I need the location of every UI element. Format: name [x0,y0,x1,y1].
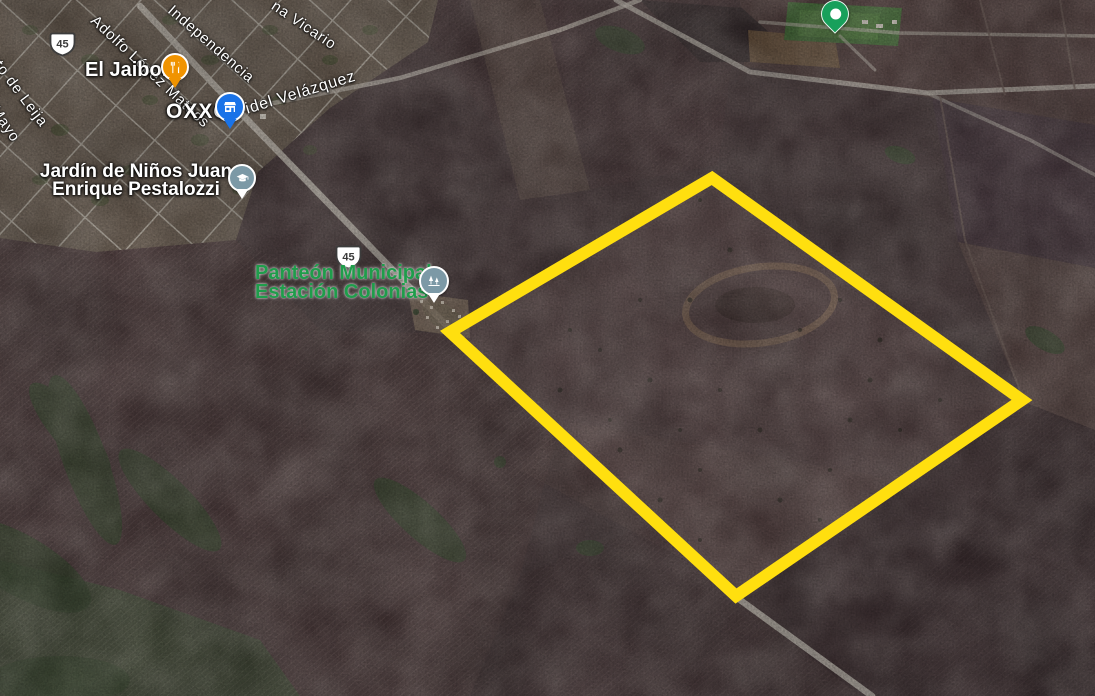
route-shield-45: 45 [49,32,76,57]
route-shield-number: 45 [56,39,68,51]
convenience-store-pin[interactable] [215,92,245,129]
poi-label-line2: Enrique Pestalozzi [38,181,234,199]
cemetery-trees-icon [426,273,442,289]
restaurant-pin[interactable] [161,53,189,88]
place-marker-center [827,6,843,22]
poi-label-line2: Estación Colonias [255,283,427,302]
noise-fine [0,0,1095,696]
restaurant-icon [168,60,183,75]
cemetery-pin[interactable] [419,266,449,303]
satellite-map-canvas[interactable]: 45 45 Adolfo López Mateos Independencia … [0,0,1095,696]
satellite-imagery [0,0,1095,696]
school-pin[interactable] [228,164,256,199]
poi-label-panteon[interactable]: Panteón Municipal Estación Colonias [255,264,427,302]
store-icon [222,99,238,115]
graduation-cap-icon [235,171,250,186]
poi-label-jardin-de-ninos[interactable]: Jardín de Niños Juan Enrique Pestalozzi [38,163,234,199]
